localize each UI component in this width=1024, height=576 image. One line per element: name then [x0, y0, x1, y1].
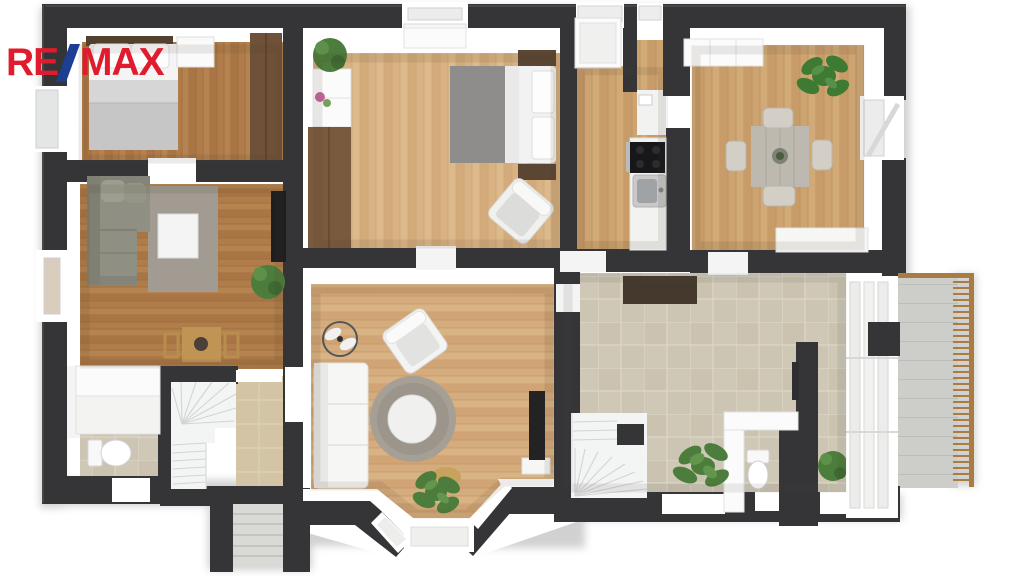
svg-text:RE: RE [6, 41, 58, 84]
svg-text:MAX: MAX [80, 41, 165, 84]
